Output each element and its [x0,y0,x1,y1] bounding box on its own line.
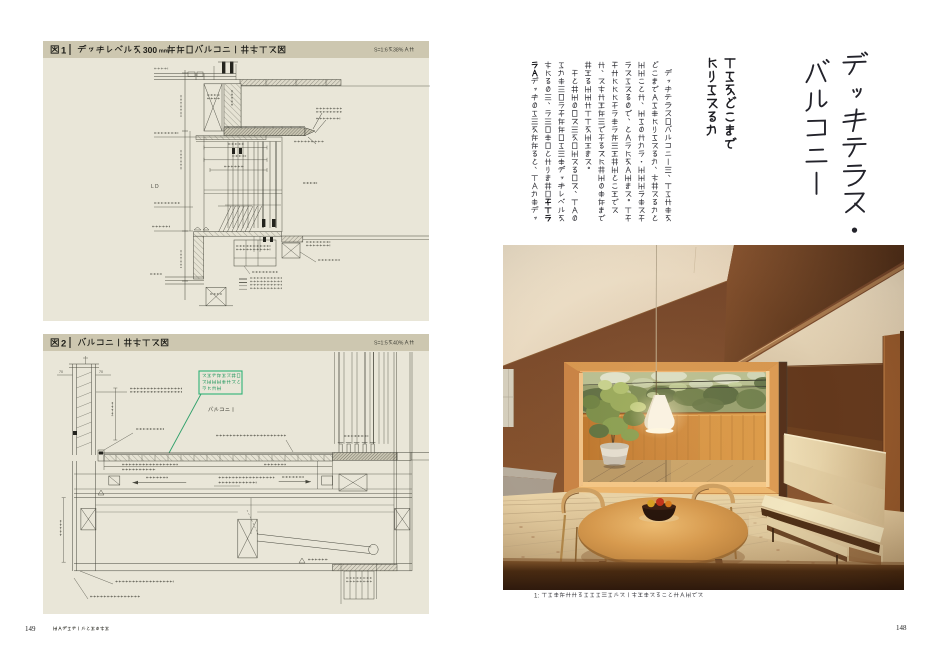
svg-text:149: 149 [25,625,36,633]
svg-text:1: 1 [61,46,67,57]
svg-text:L D: L D [151,184,159,190]
svg-text:70: 70 [99,370,103,374]
svg-text:S=1:6: S=1:6 [374,48,388,54]
svg-text:148: 148 [896,624,907,632]
svg-text:40%: 40% [393,341,404,347]
svg-text:S=1:5: S=1:5 [374,341,388,347]
svg-text:mm: mm [159,49,169,55]
svg-text:2: 2 [61,339,66,350]
svg-text:300: 300 [143,45,157,55]
svg-text:38%: 38% [393,48,404,54]
svg-text:70: 70 [59,370,63,374]
svg-text:1:: 1: [534,593,539,600]
